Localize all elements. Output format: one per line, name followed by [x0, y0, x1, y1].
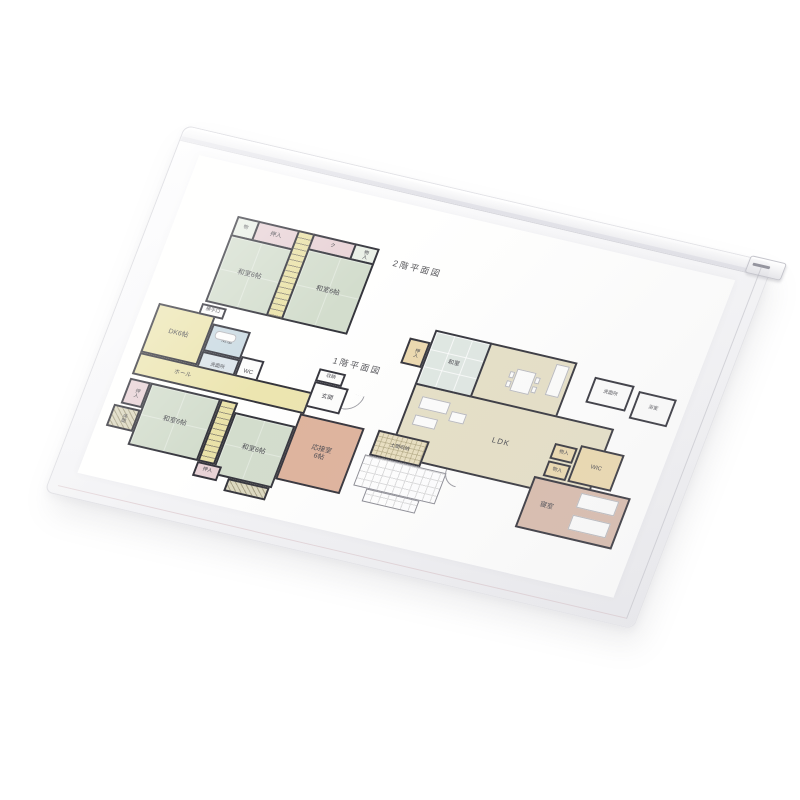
- product-photo-scene: 2階平面図 物 押入 ク 物入 和室6帖 和室6帖 1階平面図 DK6帖 勝手口…: [0, 0, 800, 800]
- floor-plan-sheet: 2階平面図 物 押入 ク 物入 和室6帖 和室6帖 1階平面図 DK6帖 勝手口…: [77, 155, 735, 598]
- room-reception-size: 6帖: [312, 453, 325, 463]
- clear-zipper-envelope: 2階平面図 物 押入 ク 物入 和室6帖 和室6帖 1階平面図 DK6帖 勝手口…: [44, 125, 774, 629]
- room-bath-right: 浴室: [629, 391, 677, 427]
- floor2-title: 2階平面図: [391, 257, 444, 280]
- room-senmenjo-right: 洗面所: [585, 377, 635, 412]
- zipper-slider-icon: [744, 255, 787, 281]
- floor2-plan: 物 押入 ク 物入 和室6帖 和室6帖: [199, 155, 735, 280]
